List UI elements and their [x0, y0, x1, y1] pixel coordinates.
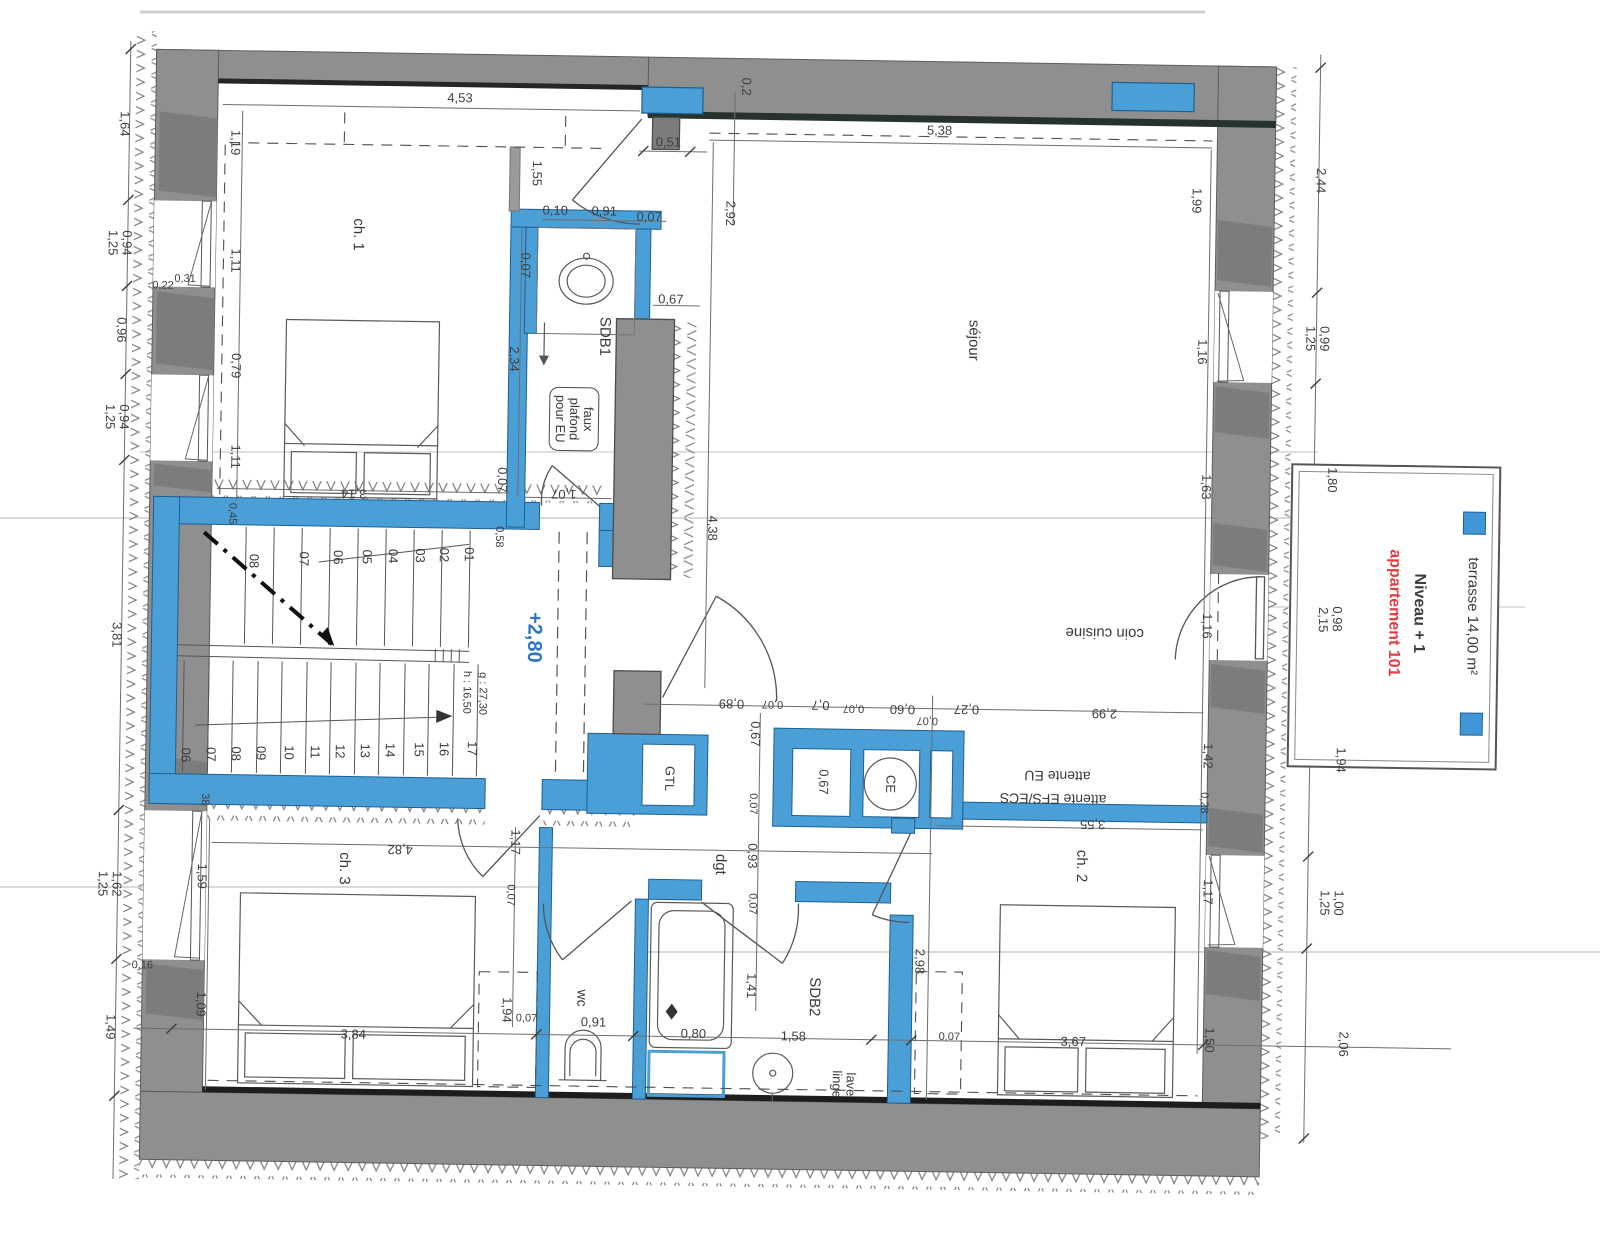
ducts — [610, 117, 680, 735]
bed-ch2 — [997, 905, 1175, 1098]
section-cut-line — [202, 532, 336, 646]
upper-flight-treads — [244, 527, 470, 648]
bed-ch1 — [284, 319, 440, 498]
terrace — [1288, 464, 1501, 769]
washing-machine — [648, 1051, 724, 1096]
toilet-wc — [559, 1030, 608, 1081]
bathtub-sdb2 — [649, 902, 733, 1048]
chain-ticks — [109, 44, 1326, 1144]
door-sejour — [663, 595, 779, 701]
bed-ch3 — [238, 893, 476, 1087]
legend-square-bottom — [1460, 713, 1482, 735]
door-wc — [542, 900, 631, 961]
door-ch2 — [872, 833, 910, 923]
windows — [142, 67, 1277, 1036]
interior-walls — [144, 141, 1217, 1108]
door-ch1 — [572, 118, 642, 224]
floor-plan-drawing — [0, 0, 1600, 1222]
legend-square-top — [1463, 512, 1485, 534]
lower-flight-treads — [182, 660, 478, 777]
window-reveals — [146, 111, 1274, 1036]
dashed-lines — [208, 110, 1226, 1098]
floor-plan-scan: ch. 1séjourcoin cuisineSDB1faux plafond … — [0, 0, 1600, 1222]
washbasin-sdb2 — [752, 1053, 793, 1102]
walk-line-upper — [319, 542, 469, 564]
doors — [456, 116, 1272, 971]
stairs — [175, 526, 587, 778]
door-sdb2 — [700, 902, 798, 964]
